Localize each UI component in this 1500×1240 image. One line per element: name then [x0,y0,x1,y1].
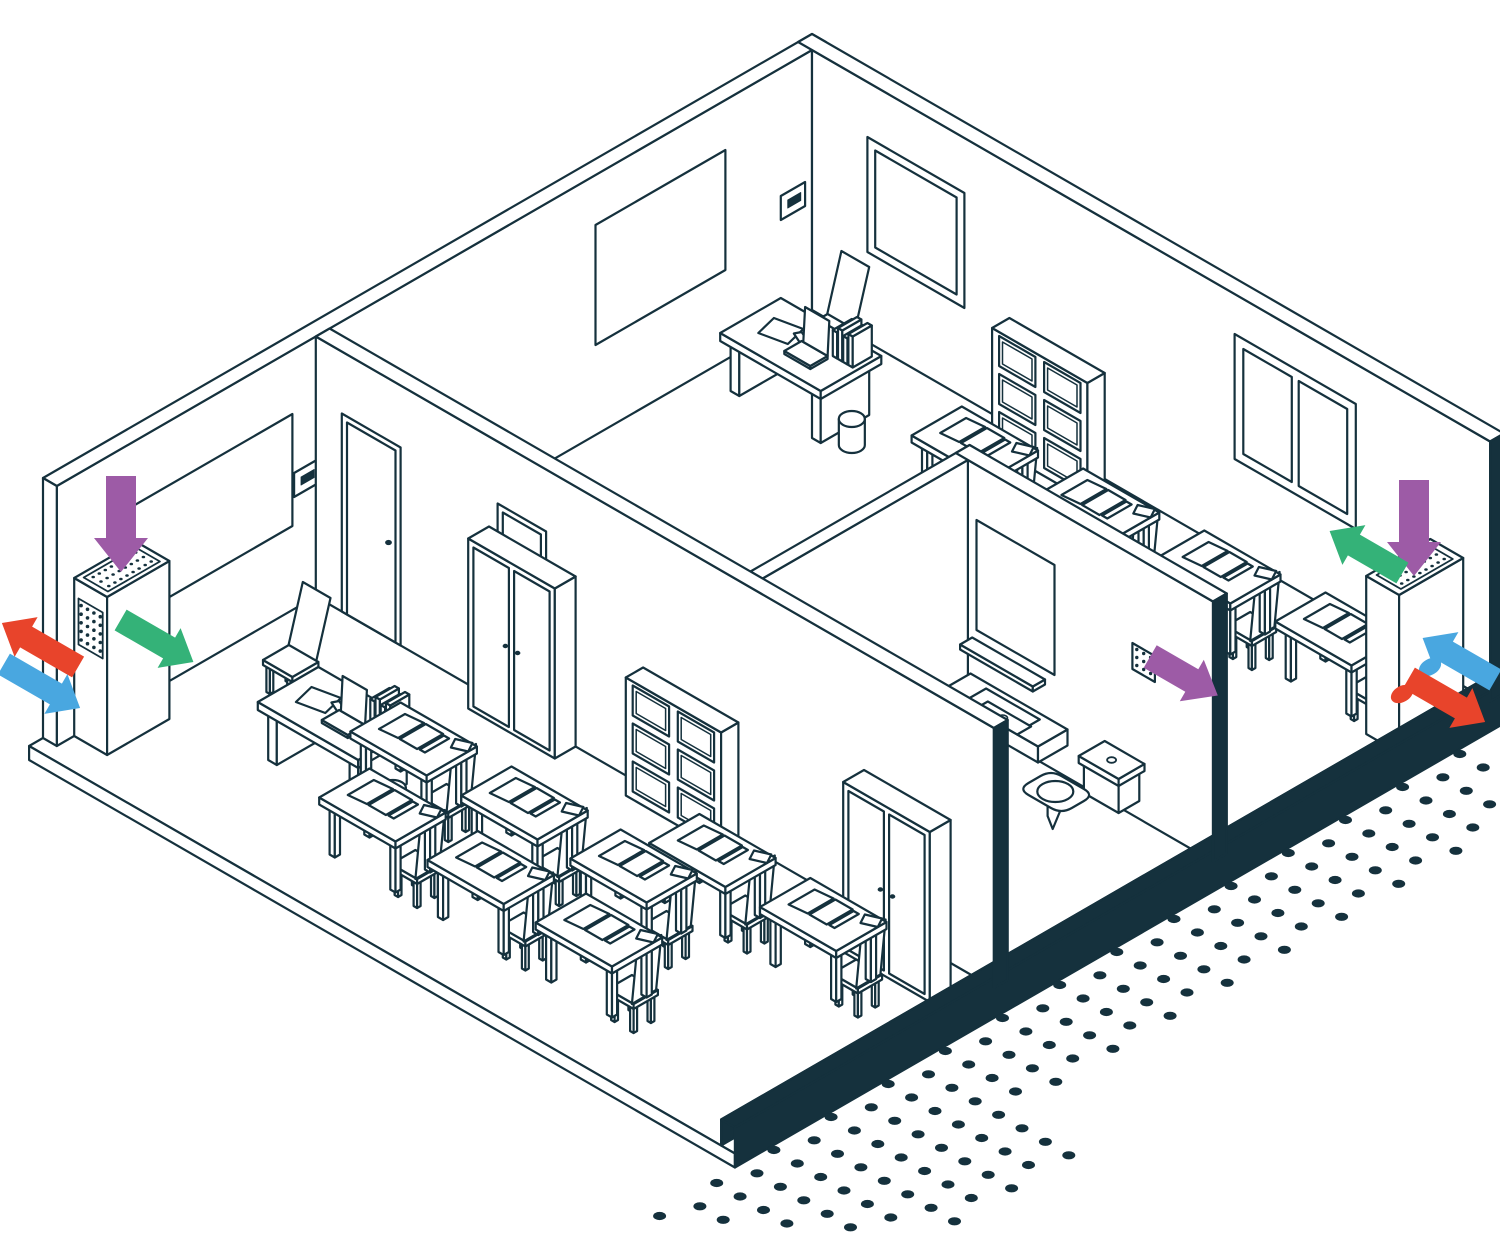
office-wastebasket [839,411,865,453]
school-ventilation-scene [0,0,1500,1240]
isometric-floorplan-illustration [0,0,1500,1240]
